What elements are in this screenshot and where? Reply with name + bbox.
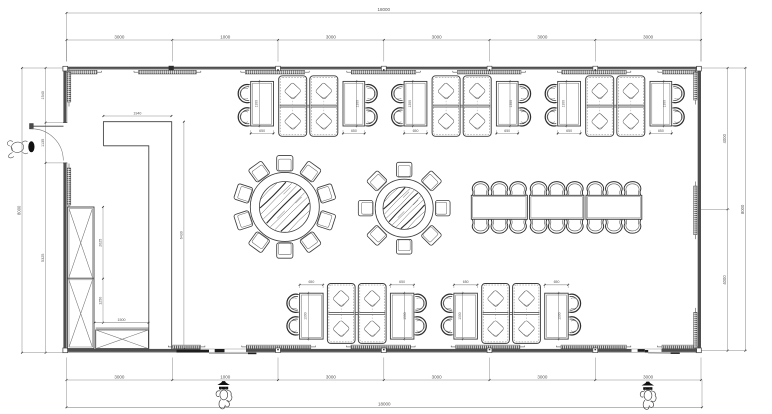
svg-text:3000: 3000 <box>537 374 548 379</box>
svg-text:650: 650 <box>351 129 357 133</box>
svg-text:650: 650 <box>308 280 314 284</box>
svg-text:3000: 3000 <box>326 374 337 379</box>
svg-text:1500: 1500 <box>118 318 126 322</box>
svg-text:1135: 1135 <box>41 139 45 147</box>
svg-text:650: 650 <box>399 280 405 284</box>
svg-text:1300: 1300 <box>557 312 561 320</box>
svg-text:18000: 18000 <box>378 402 391 407</box>
svg-text:1940: 1940 <box>133 111 141 115</box>
svg-text:1300: 1300 <box>562 100 566 108</box>
svg-text:3000: 3000 <box>643 374 654 379</box>
svg-text:1300: 1300 <box>304 312 308 320</box>
svg-text:2025: 2025 <box>99 239 103 247</box>
svg-text:650: 650 <box>463 280 469 284</box>
svg-text:8000: 8000 <box>17 205 22 215</box>
svg-text:6430: 6430 <box>180 231 184 239</box>
svg-text:650: 650 <box>566 129 572 133</box>
svg-text:1250: 1250 <box>99 297 103 305</box>
svg-text:1300: 1300 <box>403 312 407 320</box>
svg-text:18000: 18000 <box>378 7 391 12</box>
svg-text:8000: 8000 <box>740 204 745 214</box>
svg-text:3000: 3000 <box>326 34 337 39</box>
svg-text:3000: 3000 <box>114 34 125 39</box>
svg-text:5325: 5325 <box>41 254 45 262</box>
svg-text:1300: 1300 <box>458 312 462 320</box>
svg-text:1300: 1300 <box>255 100 259 108</box>
svg-text:1300: 1300 <box>408 100 412 108</box>
svg-text:650: 650 <box>413 129 419 133</box>
svg-text:650: 650 <box>658 129 664 133</box>
svg-text:650: 650 <box>554 280 560 284</box>
svg-text:1300: 1300 <box>662 100 666 108</box>
svg-text:4000: 4000 <box>722 133 727 143</box>
svg-text:3000: 3000 <box>537 34 548 39</box>
svg-text:3000: 3000 <box>432 34 443 39</box>
svg-text:650: 650 <box>259 129 265 133</box>
svg-text:1000: 1000 <box>220 374 231 379</box>
svg-text:3000: 3000 <box>114 374 125 379</box>
svg-text:3000: 3000 <box>643 34 654 39</box>
svg-text:1000: 1000 <box>220 34 231 39</box>
svg-text:4000: 4000 <box>722 275 727 285</box>
svg-text:1300: 1300 <box>509 100 513 108</box>
svg-text:650: 650 <box>504 129 510 133</box>
svg-text:1300: 1300 <box>355 100 359 108</box>
svg-text:3000: 3000 <box>432 374 443 379</box>
svg-text:1540: 1540 <box>41 91 45 99</box>
